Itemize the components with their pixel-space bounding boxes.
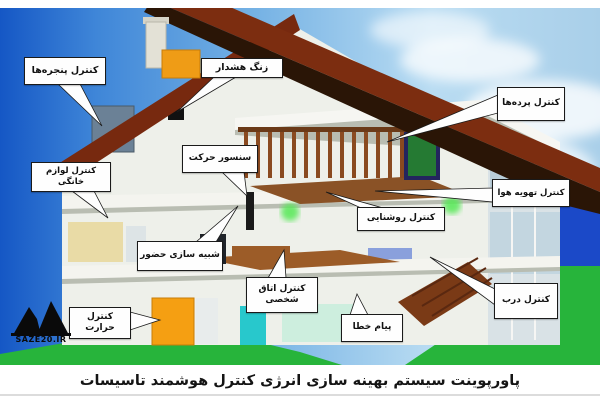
label-door-control: کنترل درب xyxy=(494,283,558,319)
roof-orange-box xyxy=(162,50,200,78)
label-presence-simulation: شبیه سازی حضور xyxy=(137,241,223,271)
label-error-message: پیام خطا xyxy=(341,314,403,342)
label-ventilation-control: کنترل تهویه هوا xyxy=(492,179,570,207)
label-curtains-control: کنترل پرده‌ها xyxy=(497,87,565,121)
caption-rule xyxy=(0,394,600,396)
label-temperature-control: کنترل حرارت xyxy=(69,307,131,339)
label-personal-room-control: کنترل اتاق شخصی xyxy=(246,277,318,313)
label-window-control: کنترل پنجره‌ها xyxy=(24,57,106,85)
caption-text: پاورپوینت سیستم بهینه سازی انرژی کنترل ه… xyxy=(80,373,520,389)
label-appliances-control: کنترل لوازم خانگی xyxy=(31,162,111,192)
saze20-logo: Saze20.ir xyxy=(8,299,74,349)
mountains-icon xyxy=(11,299,71,337)
label-lighting-control: کنترل روشنایی xyxy=(357,207,445,231)
label-motion-sensor: سنسور حرکت xyxy=(182,145,258,173)
label-alarm-bell: زنگ هشدار xyxy=(201,58,283,78)
top-border xyxy=(0,0,600,8)
logo-text: Saze20.ir xyxy=(15,335,66,344)
smart-home-diagram: کنترل پنجره‌ها زنگ هشدار کنترل پرده‌ها ک… xyxy=(0,0,600,400)
